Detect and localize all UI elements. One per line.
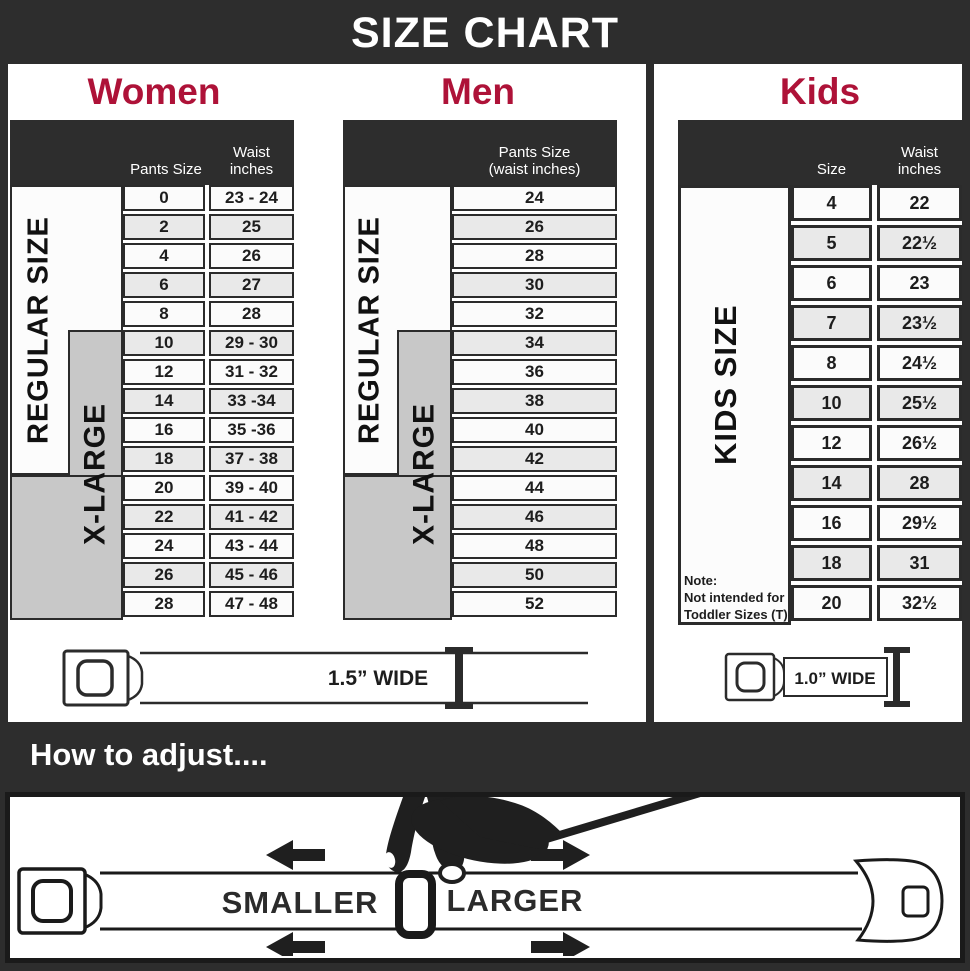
kids-belt-width-illustration: 1.0” WIDE bbox=[716, 646, 926, 708]
men-pants-size-cell: 40 bbox=[452, 417, 617, 443]
page-title: SIZE CHART bbox=[0, 5, 970, 63]
women-pants-size-cell: 26 bbox=[123, 562, 205, 588]
men-pants-size-cell: 52 bbox=[452, 591, 617, 617]
women-pants-size-cell: 16 bbox=[123, 417, 205, 443]
men-pants-size-cell: 32 bbox=[452, 301, 617, 327]
kids-waist-cell: 26½ bbox=[877, 425, 962, 461]
women-col-pants-size: Pants Size bbox=[123, 161, 209, 178]
kids-table-row: 16 29½ bbox=[791, 505, 962, 541]
women-waist-cell: 45 - 46 bbox=[209, 562, 294, 588]
men-table-row: 40 bbox=[452, 417, 617, 443]
men-table-row: 30 bbox=[452, 272, 617, 298]
kids-heading: Kids bbox=[678, 70, 962, 114]
women-waist-cell: 43 - 44 bbox=[209, 533, 294, 559]
arrow-right-lower-icon bbox=[531, 932, 590, 956]
kids-table-row: 5 22½ bbox=[791, 225, 962, 261]
men-table-row: 48 bbox=[452, 533, 617, 559]
men-table-row: 34 bbox=[452, 330, 617, 356]
women-xlarge-label: X-LARGE bbox=[68, 330, 123, 618]
kids-note: Note: Not intended for Toddler Sizes (T) bbox=[684, 572, 788, 623]
kids-buckle-button bbox=[737, 663, 764, 691]
kids-size-cell: 7 bbox=[791, 305, 872, 341]
women-regular-size-label: REGULAR SIZE bbox=[10, 185, 68, 475]
women-pants-size-cell: 8 bbox=[123, 301, 205, 327]
women-rows: 0 23 - 24 2 25 4 26 bbox=[123, 185, 294, 620]
women-pants-size-cell: 0 bbox=[123, 185, 205, 211]
kids-size-cell: 8 bbox=[791, 345, 872, 381]
women-men-panel: Women Men Pants Size Waist inches REGULA… bbox=[8, 64, 646, 722]
kids-rows: 4 22 5 22½ 6 23 bbox=[791, 185, 962, 625]
kids-col-waist: Waist inches bbox=[877, 144, 962, 178]
size-chart-infographic: SIZE CHART Women Men Pants Size Waist in… bbox=[0, 0, 970, 971]
buckle-latch bbox=[128, 656, 142, 700]
women-pants-size-cell: 28 bbox=[123, 591, 205, 617]
women-waist-cell: 37 - 38 bbox=[209, 446, 294, 472]
kids-size-cell: 6 bbox=[791, 265, 872, 301]
women-pants-size-cell: 10 bbox=[123, 330, 205, 356]
women-table-row: 28 47 - 48 bbox=[123, 591, 294, 617]
women-waist-cell: 27 bbox=[209, 272, 294, 298]
women-table-row: 20 39 - 40 bbox=[123, 475, 294, 501]
women-table-row: 0 23 - 24 bbox=[123, 185, 294, 211]
buckle-button bbox=[78, 661, 112, 695]
kids-waist-cell: 25½ bbox=[877, 385, 962, 421]
kids-table-row: 4 22 bbox=[791, 185, 962, 221]
men-table-row: 24 bbox=[452, 185, 617, 211]
kids-table-row: 8 24½ bbox=[791, 345, 962, 381]
adjust-belt-tip bbox=[856, 860, 942, 942]
kids-waist-cell: 24½ bbox=[877, 345, 962, 381]
men-regular-size-label: REGULAR SIZE bbox=[343, 185, 397, 475]
men-table-row: 46 bbox=[452, 504, 617, 530]
kids-table-row: 6 23 bbox=[791, 265, 962, 301]
men-table-row: 42 bbox=[452, 446, 617, 472]
women-size-table: Pants Size Waist inches REGULAR SIZE X-L… bbox=[10, 120, 294, 622]
men-pants-size-cell: 30 bbox=[452, 272, 617, 298]
adjust-buckle-button bbox=[33, 881, 71, 921]
men-table-row: 32 bbox=[452, 301, 617, 327]
women-waist-cell: 35 -36 bbox=[209, 417, 294, 443]
women-waist-cell: 39 - 40 bbox=[209, 475, 294, 501]
women-pants-size-cell: 22 bbox=[123, 504, 205, 530]
women-table-row: 10 29 - 30 bbox=[123, 330, 294, 356]
women-waist-cell: 29 - 30 bbox=[209, 330, 294, 356]
women-table-row: 8 28 bbox=[123, 301, 294, 327]
men-pants-size-cell: 26 bbox=[452, 214, 617, 240]
kids-size-cell: 5 bbox=[791, 225, 872, 261]
adult-belt-width-illustration: 1.5” WIDE bbox=[56, 642, 596, 714]
loose-belt-end-line bbox=[533, 797, 700, 843]
women-table-row: 2 25 bbox=[123, 214, 294, 240]
women-table-row: 18 37 - 38 bbox=[123, 446, 294, 472]
men-table-row: 36 bbox=[452, 359, 617, 385]
women-table-row: 14 33 -34 bbox=[123, 388, 294, 414]
kids-waist-cell: 32½ bbox=[877, 585, 962, 621]
kids-belt-width-label: 1.0” WIDE bbox=[794, 669, 875, 688]
kids-table-row: 7 23½ bbox=[791, 305, 962, 341]
kids-size-cell: 16 bbox=[791, 505, 872, 541]
kids-table-row: 18 31 bbox=[791, 545, 962, 581]
men-heading: Men bbox=[332, 70, 624, 114]
women-waist-cell: 28 bbox=[209, 301, 294, 327]
kids-col-size: Size bbox=[791, 161, 872, 178]
kids-table-row: 20 32½ bbox=[791, 585, 962, 621]
women-heading: Women bbox=[8, 70, 300, 114]
women-waist-cell: 31 - 32 bbox=[209, 359, 294, 385]
women-pants-size-cell: 20 bbox=[123, 475, 205, 501]
kids-waist-cell: 31 bbox=[877, 545, 962, 581]
how-to-adjust-heading: How to adjust.... bbox=[30, 737, 268, 773]
kids-table-row: 10 25½ bbox=[791, 385, 962, 421]
men-size-table: Pants Size (waist inches) REGULAR SIZE X… bbox=[343, 120, 617, 622]
women-waist-cell: 41 - 42 bbox=[209, 504, 294, 530]
men-pants-size-cell: 50 bbox=[452, 562, 617, 588]
women-pants-size-cell: 14 bbox=[123, 388, 205, 414]
men-pants-size-cell: 36 bbox=[452, 359, 617, 385]
women-table-row: 24 43 - 44 bbox=[123, 533, 294, 559]
women-pants-size-cell: 6 bbox=[123, 272, 205, 298]
women-col-waist: Waist inches bbox=[209, 144, 294, 178]
men-pants-size-cell: 44 bbox=[452, 475, 617, 501]
women-pants-size-cell: 24 bbox=[123, 533, 205, 559]
kids-waist-cell: 29½ bbox=[877, 505, 962, 541]
adjust-belt-tip-hole bbox=[903, 887, 928, 916]
kids-waist-cell: 23½ bbox=[877, 305, 962, 341]
men-pants-size-cell: 46 bbox=[452, 504, 617, 530]
women-pants-size-cell: 2 bbox=[123, 214, 205, 240]
kids-buckle-latch bbox=[774, 658, 784, 696]
kids-waist-cell: 23 bbox=[877, 265, 962, 301]
men-table-row: 26 bbox=[452, 214, 617, 240]
kids-size-cell: 14 bbox=[791, 465, 872, 501]
kids-table-row: 14 28 bbox=[791, 465, 962, 501]
women-waist-cell: 26 bbox=[209, 243, 294, 269]
men-table-row: 44 bbox=[452, 475, 617, 501]
kids-size-cell: 4 bbox=[791, 185, 872, 221]
kids-waist-cell: 22 bbox=[877, 185, 962, 221]
kids-table-header: Size Waist inches bbox=[678, 120, 962, 185]
women-table-row: 12 31 - 32 bbox=[123, 359, 294, 385]
men-pants-size-cell: 34 bbox=[452, 330, 617, 356]
adjust-buckle bbox=[19, 869, 101, 933]
women-table-row: 22 41 - 42 bbox=[123, 504, 294, 530]
arrow-left-lower-icon bbox=[266, 932, 325, 956]
women-table-row: 26 45 - 46 bbox=[123, 562, 294, 588]
men-pants-size-cell: 24 bbox=[452, 185, 617, 211]
men-table-row: 28 bbox=[452, 243, 617, 269]
men-table-row: 52 bbox=[452, 591, 617, 617]
men-xlarge-label: X-LARGE bbox=[397, 330, 452, 618]
men-table-row: 38 bbox=[452, 388, 617, 414]
thumb-tip bbox=[440, 864, 464, 882]
width-measure-ibeam bbox=[445, 647, 473, 709]
women-pants-size-cell: 12 bbox=[123, 359, 205, 385]
men-pants-size-cell: 48 bbox=[452, 533, 617, 559]
smaller-label: SMALLER bbox=[222, 885, 379, 920]
kids-size-cell: 12 bbox=[791, 425, 872, 461]
adjust-illustration-panel: SMALLER LARGER bbox=[5, 792, 965, 963]
arrow-left-upper-icon bbox=[266, 840, 325, 870]
kids-waist-cell: 22½ bbox=[877, 225, 962, 261]
kids-size-cell: 18 bbox=[791, 545, 872, 581]
kids-size-label: KIDS SIZE bbox=[686, 205, 766, 565]
women-waist-cell: 23 - 24 bbox=[209, 185, 294, 211]
adjust-belt-illustration: SMALLER LARGER bbox=[10, 797, 958, 956]
men-pants-size-cell: 28 bbox=[452, 243, 617, 269]
kids-size-cell: 20 bbox=[791, 585, 872, 621]
men-col-pants-size: Pants Size (waist inches) bbox=[452, 144, 617, 178]
men-pants-size-cell: 38 bbox=[452, 388, 617, 414]
women-waist-cell: 25 bbox=[209, 214, 294, 240]
men-table-row: 50 bbox=[452, 562, 617, 588]
hand-icon bbox=[383, 797, 562, 882]
men-rows: 24 26 28 30 bbox=[452, 185, 617, 620]
adjust-slider bbox=[399, 874, 432, 935]
adult-belt-width-label: 1.5” WIDE bbox=[328, 667, 428, 690]
kids-waist-cell: 28 bbox=[877, 465, 962, 501]
women-table-row: 16 35 -36 bbox=[123, 417, 294, 443]
kids-size-table: Size Waist inches KIDS SIZE Note: Not in… bbox=[678, 120, 962, 630]
kids-size-cell: 10 bbox=[791, 385, 872, 421]
kids-panel: Kids Size Waist inches KIDS SIZE Note: N… bbox=[654, 64, 962, 722]
women-table-row: 6 27 bbox=[123, 272, 294, 298]
men-table-header: Pants Size (waist inches) bbox=[343, 120, 617, 185]
women-table-header: Pants Size Waist inches bbox=[10, 120, 294, 185]
women-table-row: 4 26 bbox=[123, 243, 294, 269]
women-pants-size-cell: 18 bbox=[123, 446, 205, 472]
women-waist-cell: 47 - 48 bbox=[209, 591, 294, 617]
women-pants-size-cell: 4 bbox=[123, 243, 205, 269]
women-waist-cell: 33 -34 bbox=[209, 388, 294, 414]
larger-label: LARGER bbox=[447, 883, 584, 918]
kids-table-row: 12 26½ bbox=[791, 425, 962, 461]
men-pants-size-cell: 42 bbox=[452, 446, 617, 472]
